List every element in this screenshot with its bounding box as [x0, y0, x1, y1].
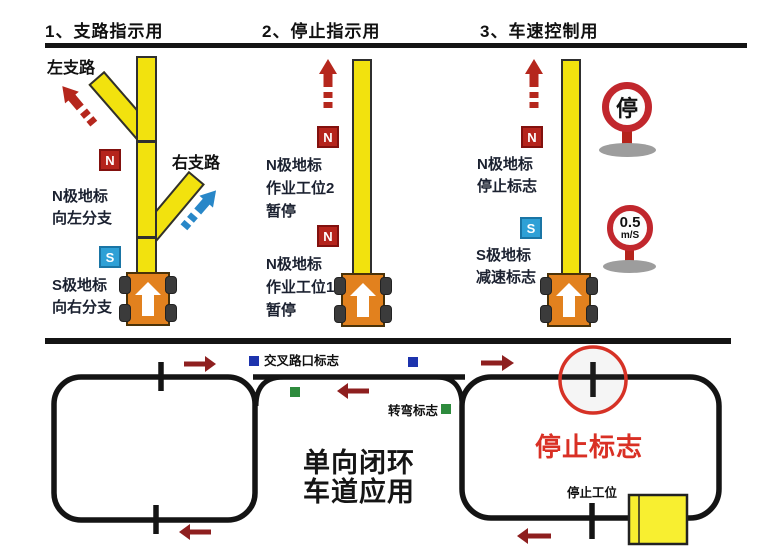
agv-up-arrow-icon: [350, 283, 376, 317]
s-pole-badge: S: [520, 217, 542, 239]
n-pole-note-panel1: N极地标 向左分支: [52, 186, 112, 230]
agv-wheel: [334, 305, 346, 323]
n-pole-badge: N: [521, 126, 543, 148]
panel2-title: 2、停止指示用: [262, 17, 380, 42]
left-branch-label: 左支路: [47, 54, 95, 78]
header-divider: [45, 43, 747, 48]
agv-wheel: [165, 304, 177, 322]
panel3-title: 3、车速控制用: [480, 17, 598, 42]
loop-caption: 单向闭环 车道应用: [303, 449, 415, 507]
agv-vehicle-panel1: [126, 272, 170, 326]
s-pole-badge: S: [99, 246, 121, 268]
flow-arrow-right-icon: [481, 355, 514, 371]
n-pole-badge: N: [99, 149, 121, 171]
travel-direction-arrow-icon: [525, 59, 543, 111]
stop-station-label: 停止工位: [567, 482, 617, 501]
agv-wheel: [586, 305, 598, 323]
agv-wheel: [165, 276, 177, 294]
main-tape-panel1: [136, 56, 157, 282]
left-loop-track: [54, 377, 255, 520]
s-pole-note-panel1: S极地标 向右分支: [52, 275, 112, 319]
speed-sign-unit: m/S: [621, 230, 639, 241]
flow-arrow-left-icon: [517, 528, 551, 544]
flow-arrow-right-icon: [184, 356, 216, 372]
n-pole-note-lower-panel2: N极地标 作业工位1 暂停: [266, 253, 334, 322]
stop-sign: 停: [602, 82, 652, 132]
intersection-marker-blue-square: [249, 356, 259, 366]
agv-wheel: [380, 277, 392, 295]
agv-vehicle-panel3: [547, 273, 591, 327]
speed-limit-sign: 0.5 m/S: [607, 205, 653, 251]
turn-marker-green-square: [290, 387, 300, 397]
agv-wheel: [540, 305, 552, 323]
main-tape-panel3: [561, 59, 581, 281]
tape-seam: [137, 236, 156, 239]
stop-sign-text: 停: [616, 91, 638, 123]
n-pole-badge: N: [317, 225, 339, 247]
panel1-title: 1、支路指示用: [45, 17, 163, 42]
agv-up-arrow-icon: [556, 283, 582, 317]
speed-sign-base: [603, 260, 656, 273]
agv-vehicle-panel2: [341, 273, 385, 327]
agv-wheel: [119, 304, 131, 322]
agv-up-arrow-icon: [135, 282, 161, 316]
agv-wheel: [119, 276, 131, 294]
turn-marker-green-square: [441, 404, 451, 414]
tape-seam: [137, 140, 156, 143]
main-tape-panel2: [352, 59, 372, 281]
turn-marker-label: 转弯标志: [388, 400, 438, 419]
flow-arrow-left-icon: [179, 524, 211, 540]
stop-sign-base: [599, 143, 656, 157]
right-branch-label: 右支路: [172, 149, 220, 173]
intersection-marker-blue-square: [408, 357, 418, 367]
travel-direction-arrow-icon: [319, 59, 337, 111]
intersection-marker-label: 交叉路口标志: [264, 350, 339, 369]
agv-wheel: [586, 277, 598, 295]
agv-wheel: [540, 277, 552, 295]
loop-track-drawing: [0, 340, 760, 550]
track-fillet: [436, 377, 462, 406]
agv-wheel: [334, 277, 346, 295]
speed-sign-value: 0.5: [620, 216, 641, 230]
s-pole-note-panel3: S极地标 减速标志: [476, 245, 536, 289]
n-pole-badge: N: [317, 126, 339, 148]
n-pole-note-panel3: N极地标 停止标志: [477, 154, 537, 198]
stop-marker-highlight-circle: [560, 347, 626, 413]
flow-arrow-left-icon: [337, 383, 369, 399]
agv-wheel: [380, 305, 392, 323]
stop-marker-label: 停止标志: [535, 427, 643, 464]
stop-station-vehicle: [629, 495, 687, 544]
track-fillet: [256, 377, 284, 406]
diagram-root: 1、支路指示用 2、停止指示用 3、车速控制用 左支路 右支路 N N极地标 向…: [0, 0, 760, 550]
n-pole-note-upper-panel2: N极地标 作业工位2 暂停: [266, 154, 334, 223]
